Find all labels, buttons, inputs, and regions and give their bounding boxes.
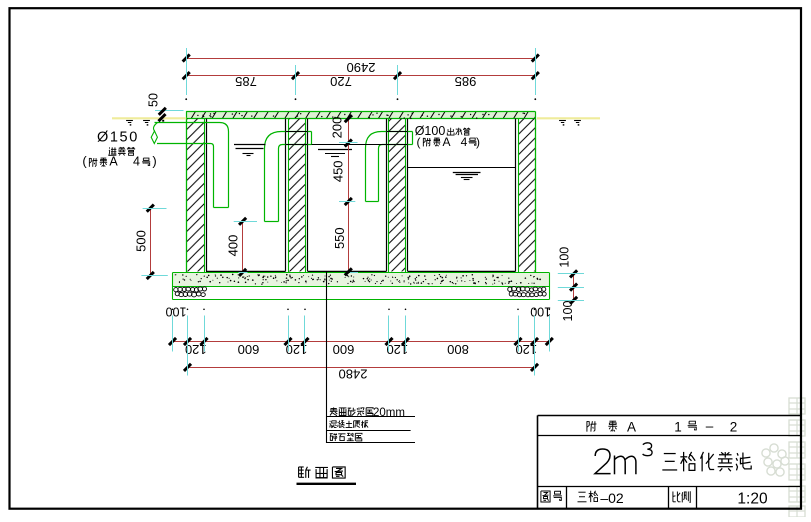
svg-text:2: 2 xyxy=(730,420,738,435)
svg-text:600: 600 xyxy=(333,342,355,357)
svg-text:450: 450 xyxy=(330,160,345,182)
svg-text:A: A xyxy=(627,420,636,435)
svg-text:720: 720 xyxy=(330,74,352,89)
svg-text:785: 785 xyxy=(235,74,257,89)
svg-text:500: 500 xyxy=(134,230,149,252)
svg-text:Ø150: Ø150 xyxy=(97,129,139,145)
svg-text:120: 120 xyxy=(185,342,207,357)
svg-text:–02: –02 xyxy=(600,490,624,506)
svg-text:120: 120 xyxy=(386,342,408,357)
svg-text:800: 800 xyxy=(447,342,469,357)
svg-text:(: ( xyxy=(417,135,421,149)
svg-text:200: 200 xyxy=(330,117,345,139)
svg-text:1:20: 1:20 xyxy=(737,491,768,508)
svg-text:400: 400 xyxy=(226,235,241,257)
svg-text:): ) xyxy=(476,135,480,149)
svg-text:100: 100 xyxy=(530,304,551,318)
svg-text:2490: 2490 xyxy=(347,60,376,75)
svg-text:A: A xyxy=(442,135,450,149)
svg-text:100: 100 xyxy=(166,305,187,319)
svg-text:4: 4 xyxy=(461,135,468,149)
svg-text:): ) xyxy=(152,154,156,169)
svg-text:50: 50 xyxy=(147,93,161,107)
svg-text:–: – xyxy=(706,419,714,434)
svg-text:100: 100 xyxy=(561,301,575,322)
svg-text:4: 4 xyxy=(133,155,140,169)
svg-text:A: A xyxy=(109,155,118,169)
svg-text:(: ( xyxy=(82,154,87,169)
svg-text:2480: 2480 xyxy=(339,367,368,382)
svg-text:600: 600 xyxy=(238,342,260,357)
svg-text:985: 985 xyxy=(455,74,477,89)
svg-text:100: 100 xyxy=(558,247,572,268)
svg-text:20mm: 20mm xyxy=(373,407,405,419)
svg-text:550: 550 xyxy=(332,227,347,249)
svg-text:1: 1 xyxy=(674,420,682,435)
